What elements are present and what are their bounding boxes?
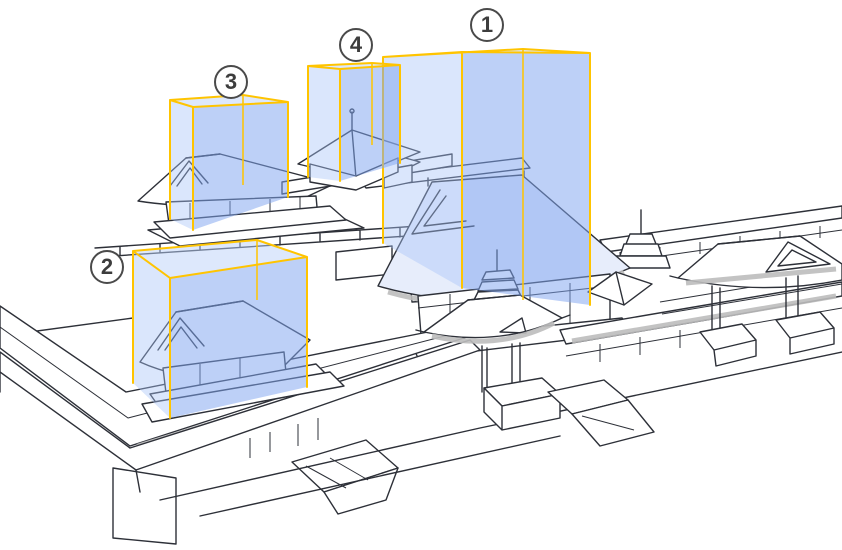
marker-4-label: 4 — [350, 34, 362, 56]
middle-gate — [416, 295, 654, 446]
temple-line-art — [0, 0, 842, 550]
marker-1-label: 1 — [481, 14, 493, 36]
marker-4[interactable]: 4 — [339, 28, 373, 62]
marker-2[interactable]: 2 — [90, 250, 124, 284]
marker-1[interactable]: 1 — [470, 8, 504, 42]
marker-2-label: 2 — [101, 256, 113, 278]
marker-3[interactable]: 3 — [214, 65, 248, 99]
marker-3-label: 3 — [225, 71, 237, 93]
temple-diagram: 1 2 3 4 — [0, 0, 842, 550]
highlight-box-2 — [133, 240, 307, 418]
highlight-box-4 — [308, 63, 400, 181]
